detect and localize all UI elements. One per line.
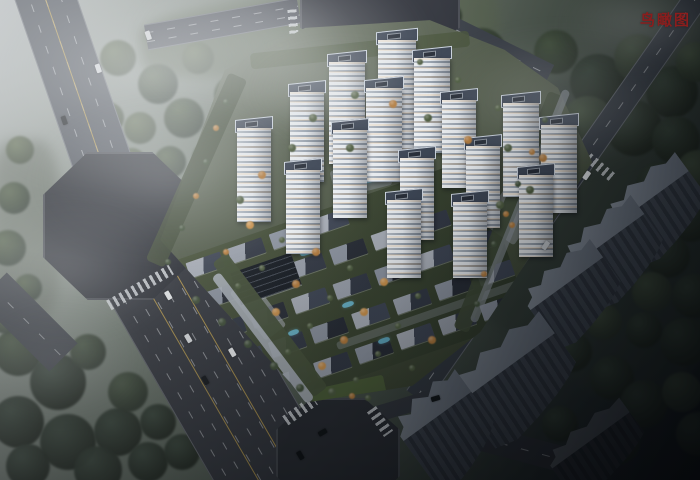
- tree: [526, 186, 534, 194]
- tree: [491, 241, 497, 247]
- tree: [496, 201, 504, 209]
- tree: [340, 336, 348, 344]
- tree: [347, 265, 353, 271]
- tree-cluster: [626, 312, 662, 348]
- tree: [481, 271, 487, 277]
- aerial-rendering: 鸟瞰图: [0, 0, 700, 480]
- tree: [365, 395, 371, 401]
- tree: [515, 181, 521, 187]
- tree: [285, 349, 291, 355]
- tree-cluster: [662, 372, 700, 412]
- tree: [360, 308, 368, 316]
- residential-tower: [387, 190, 421, 278]
- tree: [296, 384, 304, 392]
- mist-cloud: [240, 40, 440, 140]
- tree: [218, 318, 226, 326]
- tree: [244, 340, 252, 348]
- tree: [328, 388, 336, 396]
- tree-cluster: [6, 444, 50, 480]
- tower-facade: [387, 200, 421, 278]
- tree: [503, 211, 509, 217]
- tree: [474, 301, 480, 307]
- tower-roof-equipment: [408, 151, 421, 158]
- villa-house: [291, 287, 330, 314]
- tower-roof-equipment: [395, 193, 408, 200]
- tree: [346, 144, 354, 152]
- tree-cluster: [660, 318, 700, 366]
- tree: [380, 278, 388, 286]
- tree: [353, 377, 359, 383]
- tree-cluster: [676, 412, 700, 456]
- tree: [375, 351, 381, 357]
- tree: [259, 265, 265, 271]
- villa-house: [329, 238, 368, 265]
- tree: [318, 362, 326, 370]
- villa-house: [332, 273, 371, 300]
- tree: [292, 280, 300, 288]
- tree: [279, 237, 285, 243]
- villa-house: [416, 244, 455, 271]
- tree-cluster: [128, 442, 168, 480]
- tree: [307, 323, 313, 329]
- tree: [272, 308, 280, 316]
- tree: [270, 362, 278, 370]
- view-title-label: 鸟瞰图: [640, 9, 691, 30]
- residential-tower: [453, 192, 487, 278]
- tree: [327, 295, 333, 301]
- tree: [235, 283, 241, 289]
- tree: [415, 293, 421, 299]
- tree-cluster: [140, 404, 176, 440]
- tower-roof-equipment: [461, 195, 474, 202]
- tree: [409, 365, 415, 371]
- tree: [509, 222, 515, 228]
- tree: [192, 296, 200, 304]
- tree: [312, 248, 320, 256]
- tree: [428, 336, 436, 344]
- tower-facade: [453, 202, 487, 278]
- tree: [349, 393, 355, 399]
- tree: [395, 323, 401, 329]
